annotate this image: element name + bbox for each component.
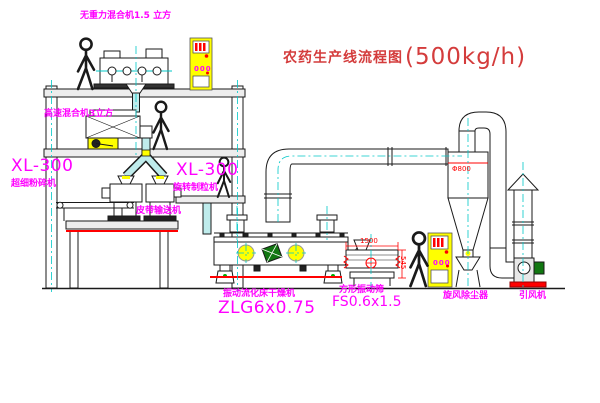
label-belt-conveyor: 皮带输送机 bbox=[136, 207, 181, 216]
induced-draft-fan bbox=[510, 258, 546, 287]
title-capacity: (500kg/h) bbox=[405, 44, 526, 70]
label-dryer-model: ZLG6x0.75 bbox=[218, 300, 316, 317]
label-granulator-model: XL-300 bbox=[176, 162, 238, 179]
cyclone-dust-collector bbox=[446, 112, 514, 287]
exhaust-duct bbox=[264, 147, 448, 222]
label-granulator-name: 旋转制粒机 bbox=[173, 184, 218, 193]
sieve-length-dim: 1500 bbox=[360, 238, 378, 245]
person-figure bbox=[411, 232, 428, 286]
vibrating-sieve bbox=[344, 240, 406, 286]
cabinet-right-display: 000 bbox=[433, 260, 451, 267]
label-fan-name: 引风机 bbox=[519, 292, 546, 301]
person-figure bbox=[154, 102, 169, 149]
person-figure bbox=[78, 39, 94, 89]
label-crusher-name: 超细粉碎机 bbox=[11, 180, 56, 189]
title-cn: 农药生产线流程图 bbox=[283, 47, 403, 67]
label-gravity-mixer: 无重力混合机1.5 立方 bbox=[80, 12, 171, 21]
page-title: 农药生产线流程图 (500kg/h) bbox=[283, 44, 526, 70]
label-high-speed-mixer: 高速混合机3立方 bbox=[44, 110, 113, 119]
cabinet-top-display: 000 bbox=[194, 66, 212, 73]
label-sieve-model: FS0.6x1.5 bbox=[332, 295, 402, 309]
cyclone-diameter-dim: Φ800 bbox=[452, 166, 471, 173]
label-cyclone-name: 旋风除尘器 bbox=[443, 292, 488, 301]
control-cabinet-top bbox=[190, 38, 212, 90]
diagram-canvas: 农药生产线流程图 (500kg/h) 无重力混合机1.5 立方 高速混合机3立方… bbox=[0, 0, 600, 403]
label-crusher-model: XL-300 bbox=[11, 158, 73, 175]
sieve-height-dim: 545 bbox=[399, 256, 406, 269]
drop-pipe bbox=[203, 203, 211, 234]
